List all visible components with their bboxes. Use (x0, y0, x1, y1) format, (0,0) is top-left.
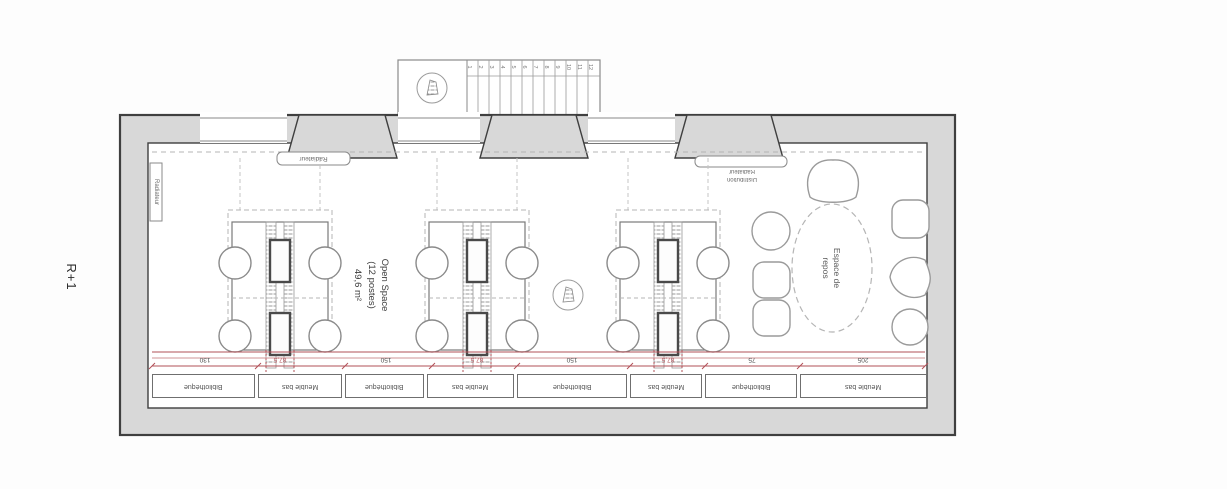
open-space-line2: (12 postes) (364, 261, 377, 309)
furniture-cell-label: Meuble bas (648, 383, 684, 390)
dimension-label: 87,5 (653, 355, 683, 365)
rest-area-line1: Espace de (831, 248, 842, 288)
furniture-cell-label: Bibliothèque (365, 383, 404, 390)
furniture-cell-bibliotheque: Bibliothèque (345, 374, 424, 398)
furniture-cell-label: Bibliothèque (184, 383, 223, 390)
desk (270, 313, 290, 355)
dimension-label: 150 (371, 355, 401, 365)
detector-symbol-icon (553, 280, 583, 310)
dimension-label: 87,5 (265, 355, 295, 365)
stair-number: 7 (530, 62, 540, 72)
furniture-cell-label: Meuble bas (845, 383, 881, 390)
open-space-label: Open Space (12 postes) 49,6 m² (341, 239, 401, 331)
furniture-cell-label: Meuble bas (452, 383, 488, 390)
furniture-cell-meuble-bas: Meuble bas (800, 374, 927, 398)
stair-number: 6 (519, 62, 529, 72)
radiator-right-label: Radiateur (700, 167, 784, 175)
stair-number: 10 (563, 62, 573, 72)
desk (467, 313, 487, 355)
distribution-label: Distribution (698, 175, 786, 183)
desk (658, 240, 678, 282)
stair-number: 2 (475, 62, 485, 72)
dimension-label: 87,5 (462, 355, 492, 365)
desk (467, 240, 487, 282)
floor-plan-drawing (0, 0, 1227, 489)
stair-number: 9 (552, 62, 562, 72)
floor-plan-canvas: R+1 Open Space (12 postes) 49,6 m² Espac… (0, 0, 1227, 489)
furniture-cell-meuble-bas: Meuble bas (258, 374, 342, 398)
rest-area-label: Espace de repos (815, 231, 847, 305)
stair-number: 12 (585, 62, 595, 72)
dimension-label: 205 (848, 355, 878, 365)
dimension-label: 75 (737, 355, 767, 365)
stair-number: 8 (541, 62, 551, 72)
furniture-cell-bibliotheque: Bibliothèque (517, 374, 627, 398)
furniture-cell-bibliotheque: Bibliothèque (152, 374, 255, 398)
furniture-cell-label: Bibliothèque (732, 383, 771, 390)
floor-level-label: R+1 (62, 247, 82, 307)
rest-area-line2: repos (820, 257, 831, 278)
furniture-cell-bibliotheque: Bibliothèque (705, 374, 797, 398)
detector-symbol-icon (417, 73, 447, 103)
window-openings (200, 112, 675, 143)
stair-number: 1 (464, 62, 474, 72)
furniture-cell-label: Meuble bas (282, 383, 318, 390)
furniture-cell-meuble-bas: Meuble bas (427, 374, 514, 398)
open-space-line3: 49,6 m² (351, 269, 364, 301)
furniture-cell-label: Bibliothèque (553, 383, 592, 390)
stair-number: 11 (574, 62, 584, 72)
furniture-cell-meuble-bas: Meuble bas (630, 374, 702, 398)
dimension-label: 130 (190, 355, 220, 365)
radiator-top-label: Radiateur (281, 154, 346, 164)
desk (270, 240, 290, 282)
stair-number: 5 (508, 62, 518, 72)
dimension-label: 150 (557, 355, 587, 365)
open-space-line1: Open Space (378, 259, 391, 312)
stair-number: 4 (497, 62, 507, 72)
radiator-right (695, 156, 787, 167)
radiator-left-label: Radiateur (151, 164, 161, 220)
stair-number: 3 (486, 62, 496, 72)
desk (658, 313, 678, 355)
